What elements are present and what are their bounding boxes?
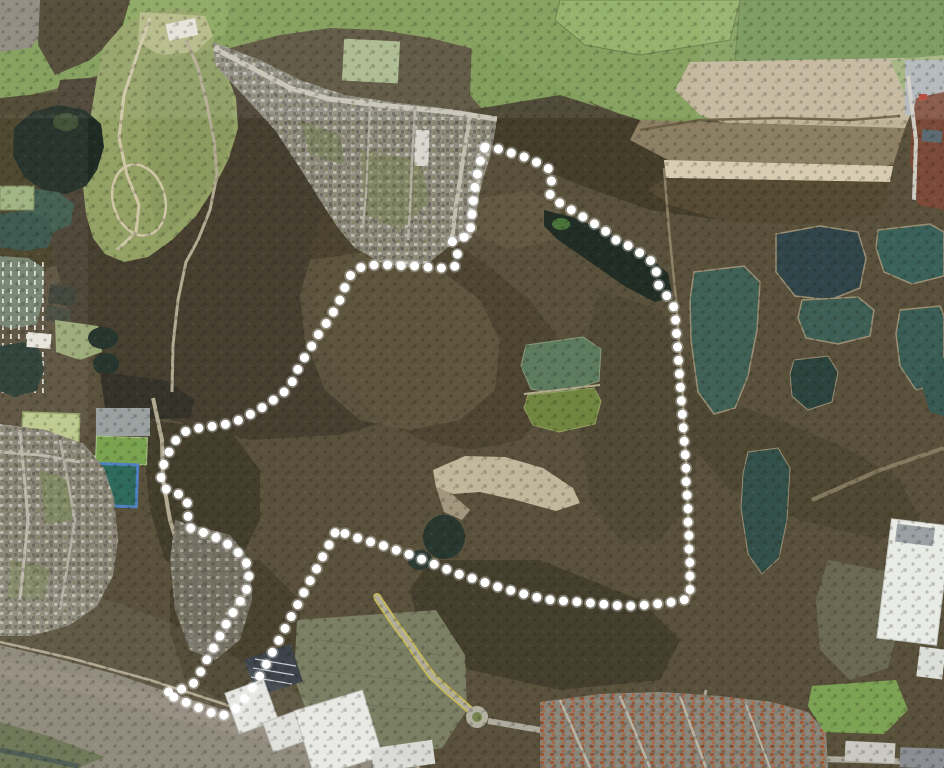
aerial-map <box>0 0 944 768</box>
foliage-texture <box>0 0 944 768</box>
land-cover-layers <box>0 0 944 768</box>
aerial-photo-canvas <box>0 0 944 768</box>
